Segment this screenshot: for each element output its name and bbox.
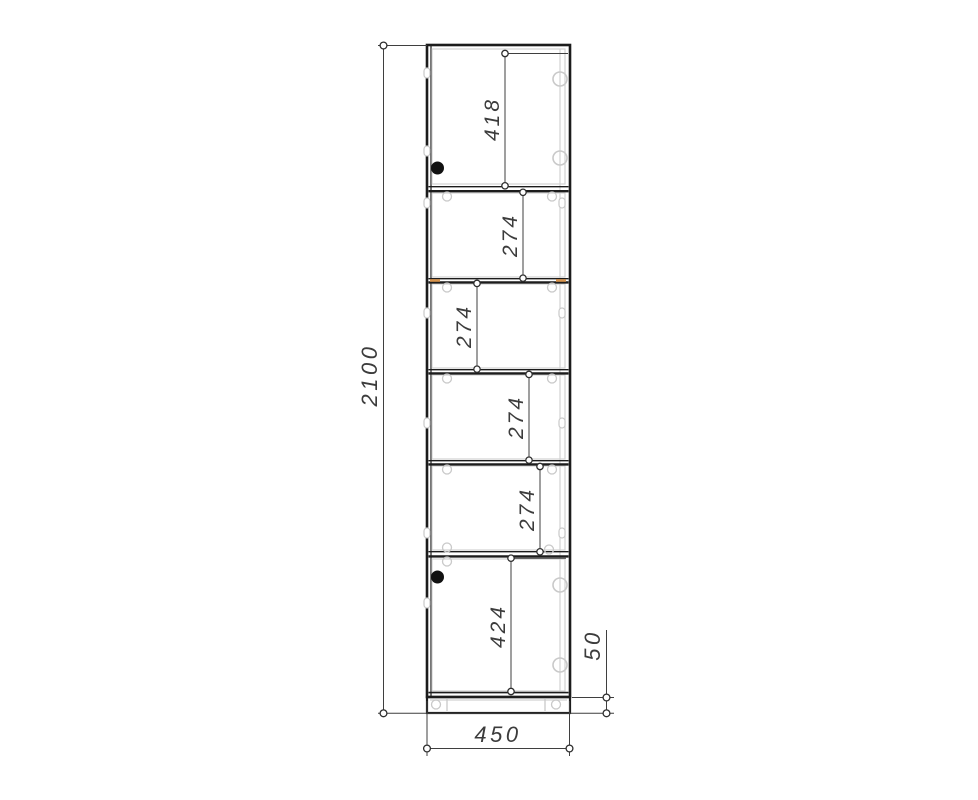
leg-leveler-icon — [432, 700, 441, 709]
edge-fittings — [424, 68, 565, 608]
cam-fitting-icon — [559, 308, 565, 318]
dim-section-1-label: 418 — [481, 97, 504, 141]
dim-section-6-label: 424 — [487, 604, 510, 648]
dim-section-5-label: 274 — [516, 487, 539, 532]
dim-overall-width: 450 — [424, 701, 573, 756]
cam-fitting-icon — [424, 598, 430, 608]
dim-overall-width-label: 450 — [474, 722, 521, 747]
cabinet-drawing: 2100 450 50 418 274 274 — [0, 0, 978, 800]
dim-plinth-height: 50 — [572, 629, 614, 716]
plinth-fittings — [432, 699, 561, 711]
edge-mark-icon — [556, 279, 566, 282]
cam-fitting-icon — [424, 308, 430, 318]
dim-section-2-label: 274 — [499, 213, 522, 258]
dim-overall-height: 2100 — [357, 42, 614, 717]
cam-fitting-icon — [424, 198, 430, 208]
dim-section-4: 274 — [505, 371, 532, 463]
dim-section-6: 424 — [487, 555, 566, 695]
dim-plinth-height-label: 50 — [580, 629, 605, 660]
cam-fitting-icon — [424, 146, 430, 156]
dim-section-3-label: 274 — [453, 304, 476, 349]
door-knob-icon — [431, 162, 444, 175]
cam-fitting-icon — [559, 198, 565, 208]
shelf-bay-panel — [432, 284, 565, 368]
dim-section-3: 274 — [453, 280, 480, 372]
cam-fitting-icon — [424, 418, 430, 428]
cam-fitting-icon — [559, 528, 565, 538]
cam-fitting-icon — [424, 68, 430, 78]
dim-section-5: 274 — [516, 463, 543, 555]
dim-overall-height-label: 2100 — [357, 344, 382, 408]
cam-fitting-icon — [443, 543, 452, 552]
drawing-canvas: 2100 450 50 418 274 274 — [0, 0, 978, 800]
dim-section-4-label: 274 — [505, 395, 528, 440]
cam-fitting-icon — [424, 528, 430, 538]
dim-section-1: 418 — [481, 50, 568, 189]
edge-mark-icon — [430, 279, 440, 282]
leg-leveler-icon — [552, 700, 561, 709]
door-knob-icon — [431, 571, 444, 584]
dim-section-2: 274 — [499, 189, 526, 281]
shelf-bay-panel — [432, 466, 565, 550]
cam-fitting-icon — [559, 418, 565, 428]
shelf-bay-panel — [432, 375, 565, 459]
cam-fitting-icon — [443, 557, 452, 566]
